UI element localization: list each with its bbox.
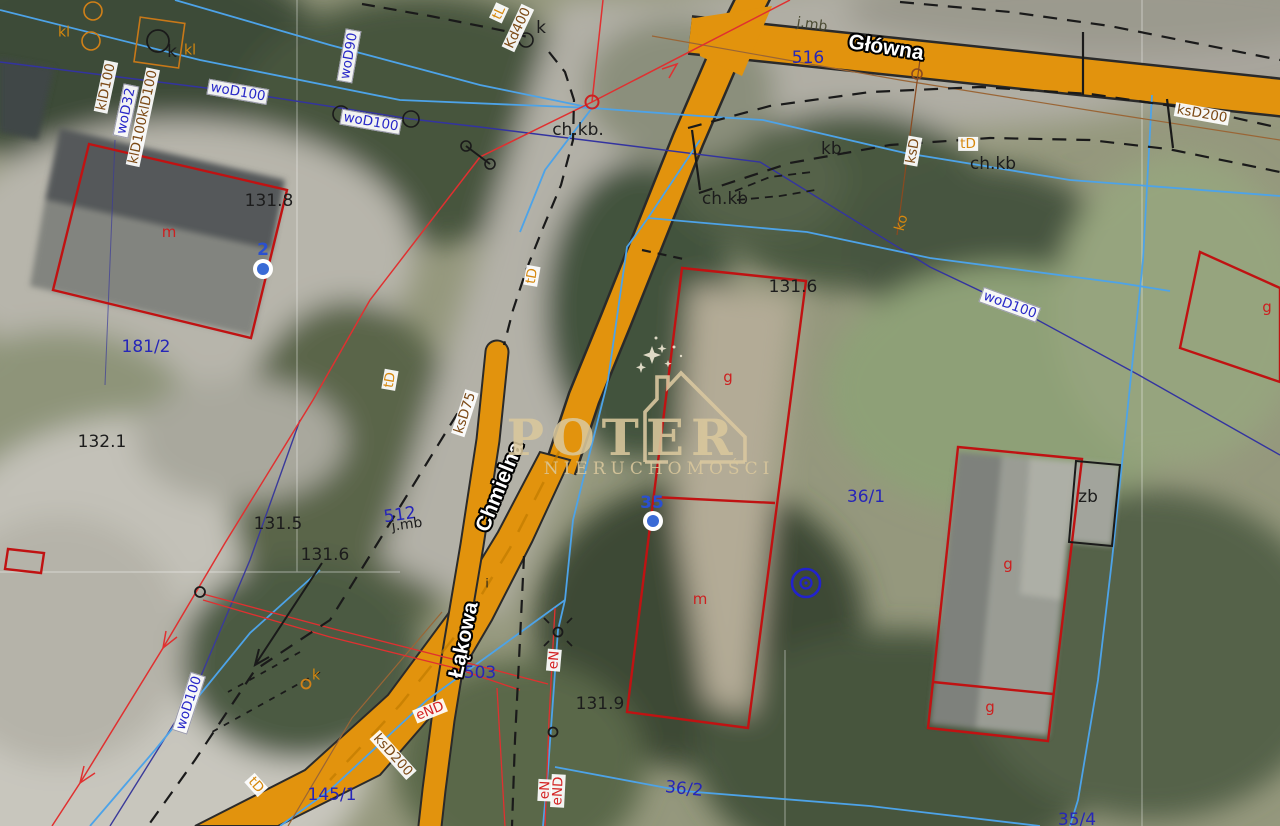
house-point-2 [253,259,273,279]
parcel-number-36-2: 36/2 [664,779,704,801]
utility-label-k-1: k [167,44,177,62]
elevation-label-131-8: 131.8 [245,193,294,211]
parcel-number-516: 516 [792,50,824,68]
map-canvas[interactable]: kl k kl klD100 woD32 klD100klD100 woD100… [0,0,1280,826]
utility-label-kl-1: kl [58,26,70,41]
utility-label-en-1: eN [546,648,562,672]
landuse-label-chkb-3: ch.kb [702,191,748,209]
elevation-label-131-6a: 131.6 [301,547,350,565]
elevation-label-131-6b: 131.6 [769,279,818,297]
building-use-g-4: g [985,700,995,716]
house-point-35 [643,511,663,531]
landuse-label-kb: kb. [821,141,847,159]
building-use-g-1: g [723,370,733,386]
parcel-number-36-1: 36/1 [847,489,885,507]
elevation-label-131-5: 131.5 [254,516,303,534]
utility-label-end-2: eND [550,774,566,808]
landuse-label-chkb-1: ch.kb. [552,122,604,140]
building-use-g-2: g [1262,300,1272,316]
landuse-label-chkb-2: ch.kb [970,156,1016,174]
watermark-title: POTER [506,412,739,465]
building-use-m-2: m [693,592,708,608]
utility-label-kl-2: kl [184,44,196,59]
parcel-number-181-2: 181/2 [122,339,171,357]
parcel-number-35-4: 35/4 [1058,812,1096,826]
utility-label-td-1: tD [958,137,978,151]
symbol-label-i: i [485,578,488,591]
utility-label-k-2: k [536,20,546,38]
parcel-number-145-1: 145/1 [308,787,357,805]
elevation-label-132-1: 132.1 [78,434,127,452]
elevation-label-131-9: 131.9 [576,696,625,714]
utility-label-k-orange: k [312,669,320,684]
house-number-35: 35 [640,495,664,513]
building-use-g-3: g [1003,557,1013,573]
building-use-m-1: m [162,225,177,241]
utility-label-td-2: tD [523,265,540,287]
utility-label-td-3: tD [381,369,398,391]
watermark-subtitle: NIERUCHOMOŚCI [544,461,775,479]
building-use-zb: zb [1078,489,1098,507]
house-number-2: 2 [257,242,269,260]
